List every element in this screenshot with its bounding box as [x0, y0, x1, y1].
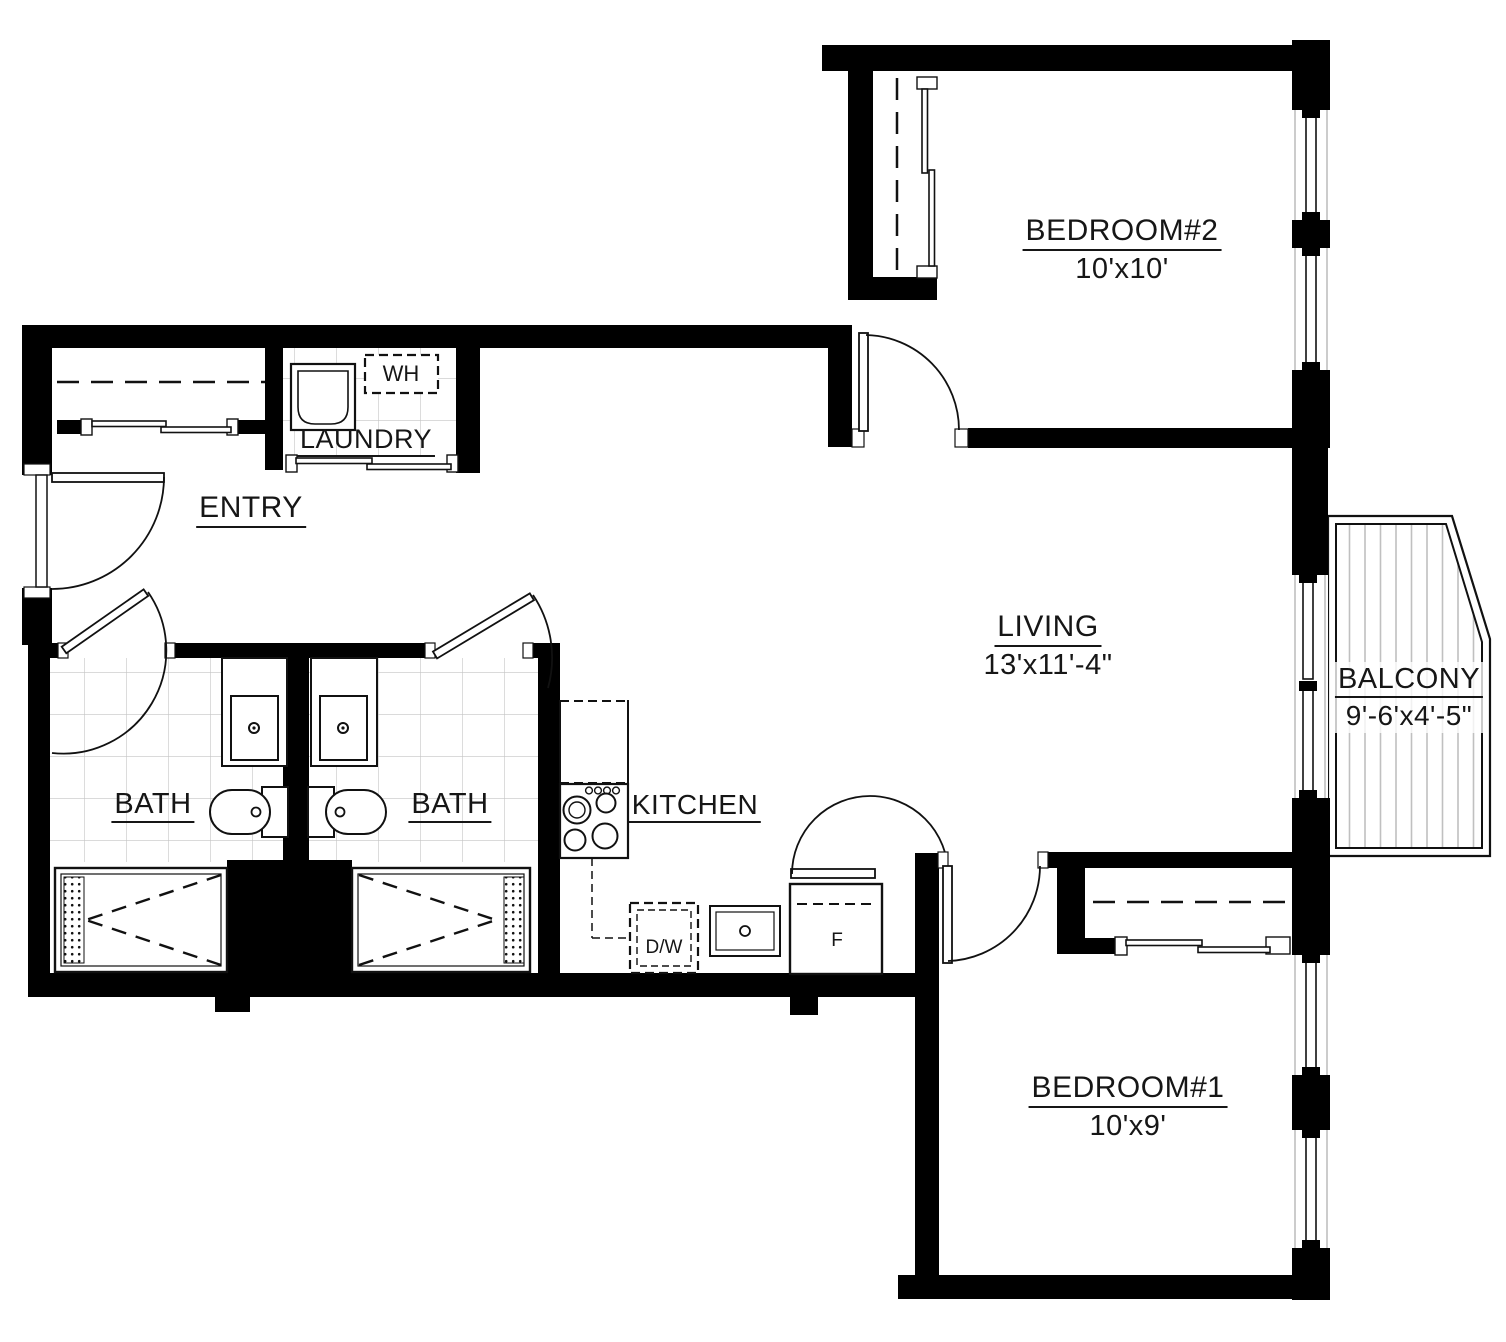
water-heater-tag: WH — [383, 361, 420, 387]
bathtub — [55, 868, 227, 972]
closet-sliding-door — [161, 427, 231, 433]
bath-right-door-leaf — [433, 593, 534, 658]
wall — [28, 643, 50, 973]
living-door-leaf — [791, 869, 875, 878]
bathtub — [352, 868, 530, 972]
closet-sliding-door — [922, 89, 928, 173]
room-dims: 13'x11'-4" — [983, 649, 1112, 681]
wall — [915, 853, 939, 1298]
room-dims: 10'x9' — [1029, 1110, 1228, 1142]
balcony-label: BALCONY 9'-6'x4'-5" — [1331, 662, 1487, 733]
bedroom1-door-leaf — [943, 866, 952, 963]
wall — [265, 345, 283, 470]
kitchen-cabinet — [560, 700, 628, 784]
refrigerator-tag: F — [831, 930, 843, 952]
washer-drum — [298, 371, 348, 424]
bedroom2-label: BEDROOM#2 10'x10' — [1023, 214, 1222, 285]
kitchen-label: KITCHEN — [629, 789, 761, 823]
wall — [822, 45, 1314, 71]
bedroom1-label: BEDROOM#1 10'x9' — [1029, 1071, 1228, 1142]
laundry-sliding-door — [367, 464, 451, 470]
room-name: BALCONY — [1335, 663, 1483, 698]
wall — [848, 277, 937, 300]
room-name: BATH — [408, 788, 491, 823]
dishwasher-tag: D/W — [646, 937, 683, 959]
wall — [1057, 868, 1085, 954]
wall — [1292, 1248, 1330, 1300]
closet-sliding-door — [1198, 947, 1270, 953]
wall — [538, 643, 560, 975]
room-name: ENTRY — [196, 491, 306, 528]
window — [1292, 110, 1330, 220]
room-name: BEDROOM#1 — [1029, 1071, 1228, 1108]
bath-left-door-leaf — [62, 589, 149, 653]
wall — [22, 325, 852, 348]
wall — [1292, 40, 1330, 110]
floor-plan: BEDROOM#2 10'x10' LIVING 13'x11'-4" BALC… — [0, 0, 1506, 1342]
wall — [1048, 852, 1293, 868]
refrigerator — [790, 884, 882, 974]
closet-sliding-door — [92, 421, 166, 427]
bedroom2-door-leaf — [859, 333, 868, 431]
wall — [227, 860, 352, 975]
entry-door-panel — [36, 475, 47, 587]
living-label: LIVING 13'x11'-4" — [983, 610, 1112, 681]
closet-sliding-door — [929, 170, 935, 266]
wall — [828, 325, 852, 447]
closet-sliding-door — [1126, 940, 1202, 946]
room-dims: 10'x10' — [1023, 253, 1222, 285]
window — [1292, 248, 1330, 370]
entry-door-leaf — [52, 473, 164, 482]
floor-plan-drawing — [0, 0, 1506, 1342]
wall — [28, 973, 938, 997]
bedroom2-door-arc — [866, 335, 959, 430]
laundry-label: LAUNDRY — [297, 424, 435, 457]
counter-edge — [592, 858, 630, 938]
toilet — [308, 787, 386, 837]
wall — [22, 325, 52, 475]
room-dims: 9'-6'x4'-5" — [1335, 700, 1483, 731]
window — [1292, 955, 1330, 1075]
entry-label: ENTRY — [196, 491, 306, 528]
wall-stub — [215, 997, 250, 1012]
wall — [898, 1275, 1300, 1299]
room-name: LIVING — [994, 610, 1101, 647]
wall — [848, 45, 873, 300]
bath-right-label: BATH — [408, 788, 491, 823]
toilet — [210, 787, 288, 837]
wall — [1292, 798, 1330, 955]
window — [1292, 1130, 1330, 1248]
wall — [968, 428, 1298, 448]
laundry-sliding-door — [296, 458, 372, 464]
vanity-sink — [222, 658, 287, 766]
wall — [456, 343, 480, 473]
room-name: KITCHEN — [629, 789, 761, 823]
room-name: LAUNDRY — [297, 424, 435, 457]
bedroom1-door-arc — [948, 866, 1040, 961]
stove — [560, 784, 628, 858]
vanity-sink — [311, 658, 377, 766]
wall — [1292, 428, 1328, 575]
wall — [1292, 220, 1330, 248]
entry-door-arc — [52, 477, 164, 589]
balcony-sliding-door — [1292, 575, 1328, 798]
wall-stub — [790, 997, 818, 1015]
wall — [1292, 1075, 1330, 1130]
bath-left-label: BATH — [111, 788, 194, 823]
room-name: BATH — [111, 788, 194, 823]
room-name: BEDROOM#2 — [1023, 214, 1222, 251]
kitchen-sink — [710, 906, 780, 956]
